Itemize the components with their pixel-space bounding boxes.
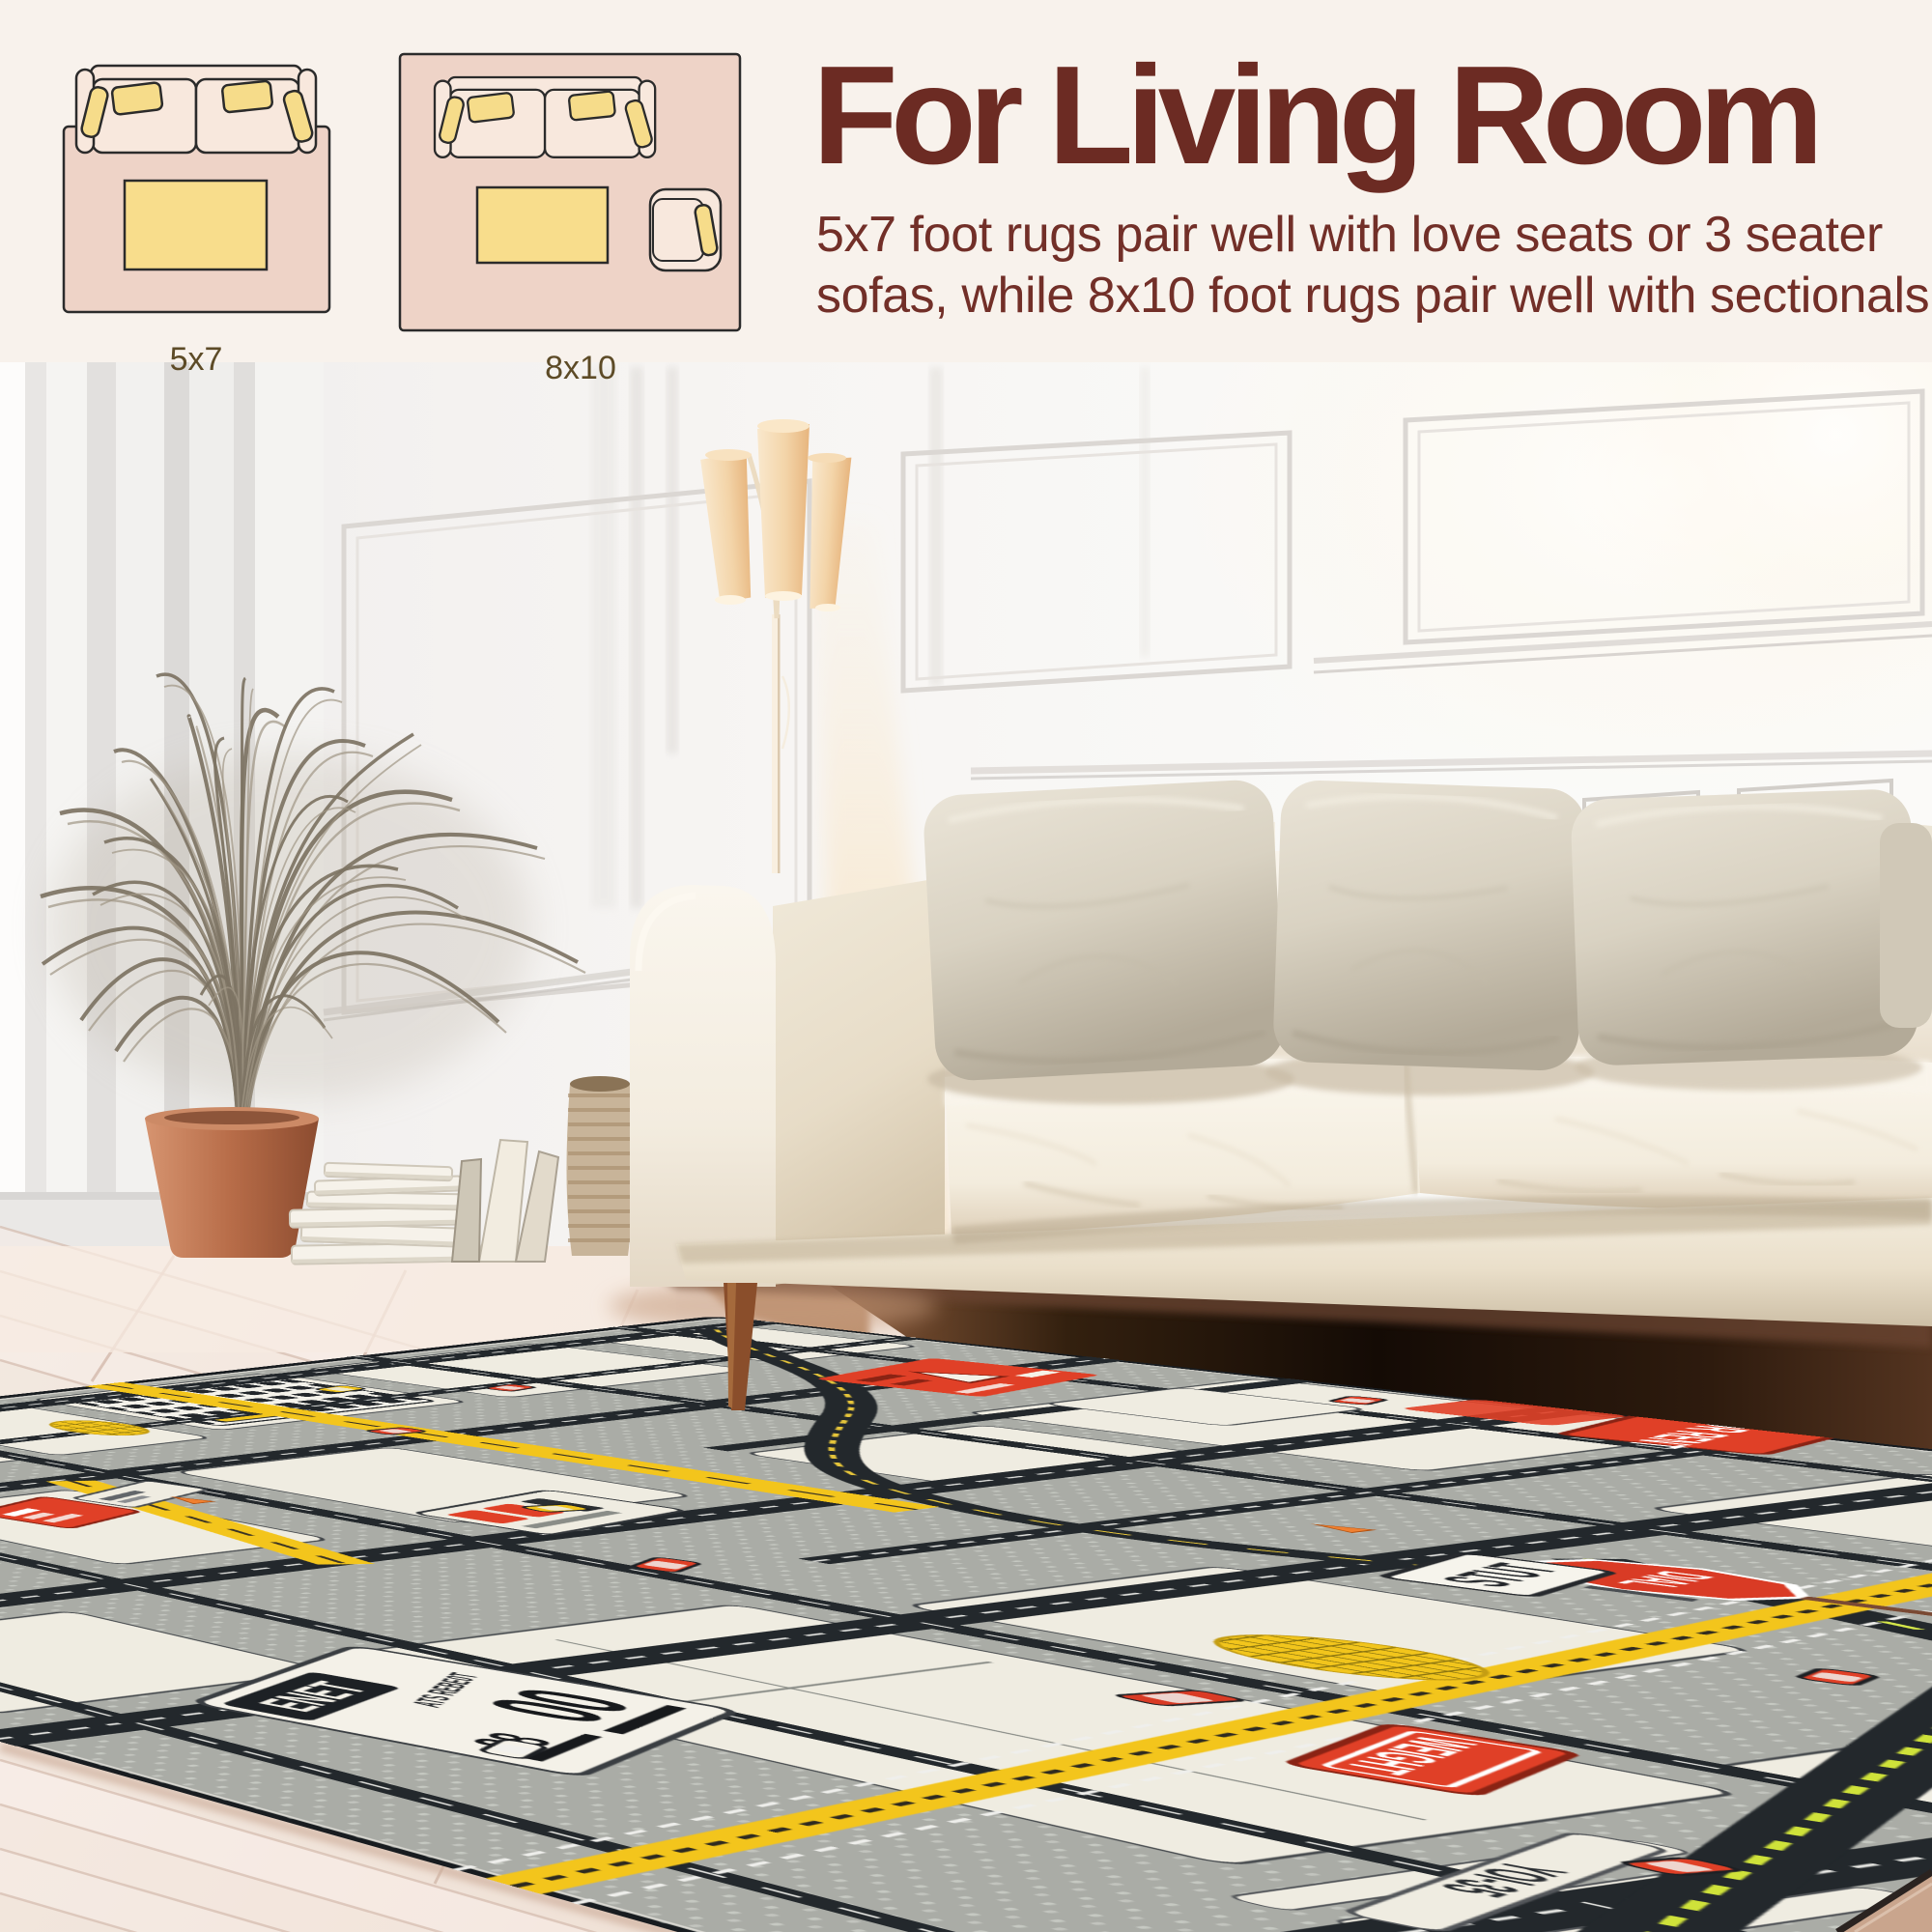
svg-text:8x10: 8x10 — [545, 350, 616, 386]
svg-text:5x7: 5x7 — [170, 341, 223, 378]
